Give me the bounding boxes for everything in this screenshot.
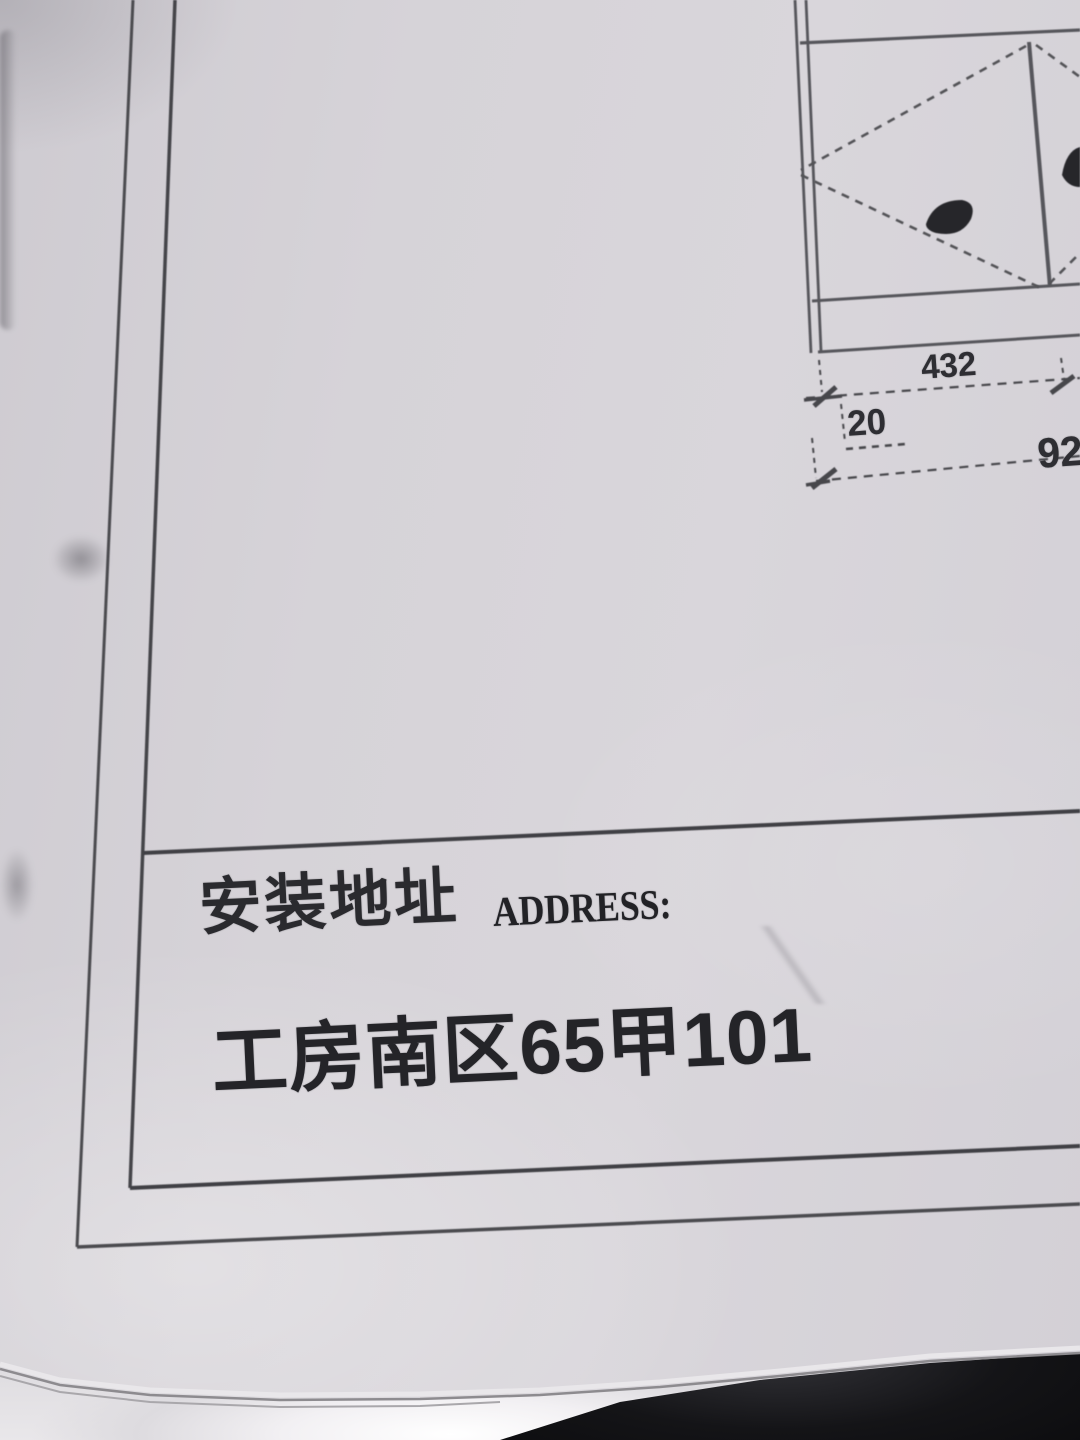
cabinet-drawing — [795, 0, 1080, 353]
cabinet-top-edge — [800, 30, 1080, 43]
door-divider — [1029, 42, 1050, 287]
title-block-frame — [130, 811, 1080, 1188]
drawing-linework — [0, 0, 1080, 1440]
door-handles — [926, 147, 1080, 234]
install-address-label-cn: 安装地址 — [198, 866, 461, 940]
cabinet-door-bottom — [812, 284, 1080, 301]
door-swing-dashes-left — [801, 46, 1043, 289]
dim-label-20: 20 — [846, 403, 887, 442]
door-handle-right — [1062, 147, 1080, 187]
dim-label-92: 92 — [1036, 430, 1080, 475]
door-handle-left — [926, 200, 973, 234]
install-address-label-en: ADDRESS: — [492, 884, 672, 934]
paper-edge — [0, 1348, 1080, 1407]
document-photo: 432 20 92 安装地址 ADDRESS: 工房南区65甲101 — [0, 0, 1080, 1440]
dim-label-432: 432 — [903, 346, 994, 386]
page-border-inner — [130, 0, 175, 1188]
